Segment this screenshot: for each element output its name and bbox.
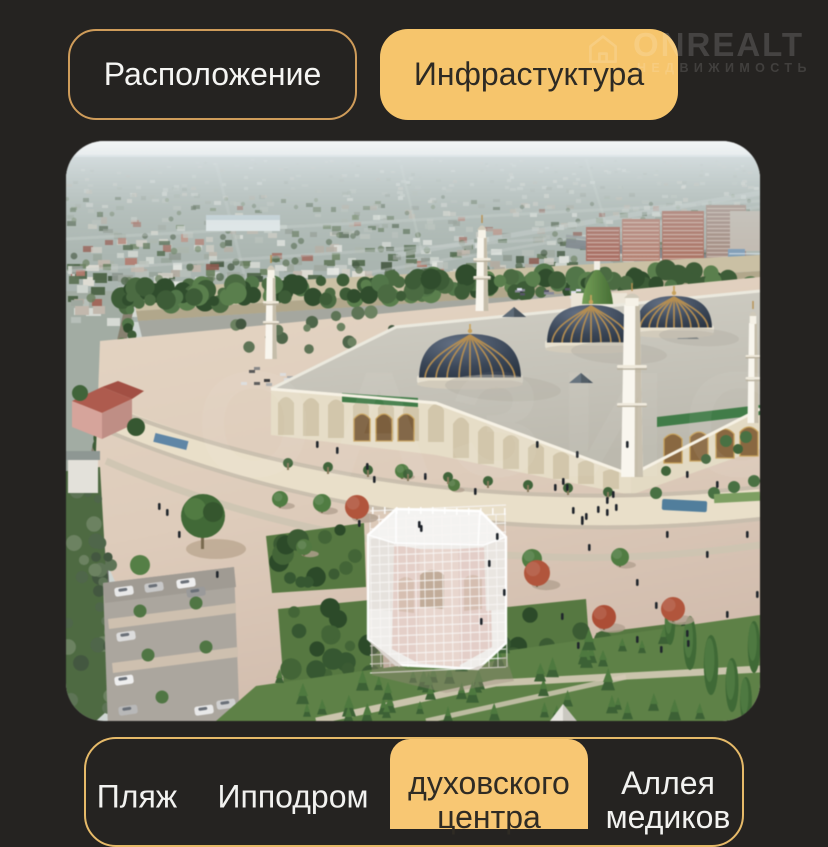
svg-text:ОАЗИС: ОАЗИС [196,340,760,508]
